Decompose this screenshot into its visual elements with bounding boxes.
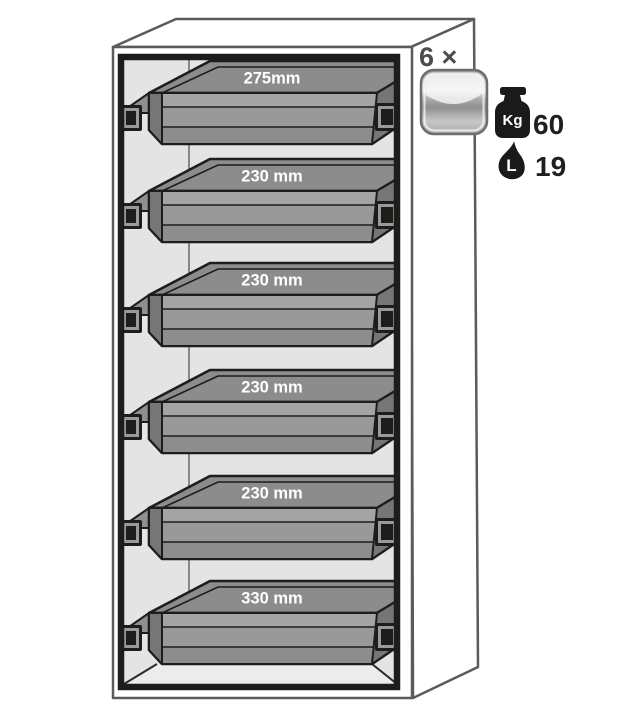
weight-unit-label: Kg (503, 112, 523, 129)
shelf-depth-label: 230 mm (241, 168, 302, 186)
capacity-specs: Kg 60 L 19 (495, 87, 566, 182)
product-diagram: 275mm230 mm230 mm230 mm230 mm330 mm 6 × … (0, 0, 629, 718)
pull-out-shelf-icon (421, 70, 487, 134)
shelf-depth-label: 230 mm (241, 485, 302, 503)
shelf-multiplier: 6 × (419, 42, 457, 72)
shelf-depth-label: 230 mm (241, 379, 302, 397)
volume-value: 19 (535, 151, 566, 182)
quantity-indicator: 6 × (419, 42, 487, 134)
weight-kg-icon: Kg (495, 87, 530, 138)
volume-unit-label: L (506, 156, 516, 175)
shelf-depth-label: 275mm (244, 70, 301, 88)
interior-floor (124, 664, 397, 684)
liquid-drop-icon: L (499, 141, 525, 179)
shelf-depth-label: 230 mm (241, 272, 302, 290)
cabinet-diagram: 275mm230 mm230 mm230 mm230 mm330 mm 6 × … (0, 0, 629, 718)
weight-value: 60 (533, 109, 564, 140)
shelf-depth-label: 330 mm (241, 590, 302, 608)
